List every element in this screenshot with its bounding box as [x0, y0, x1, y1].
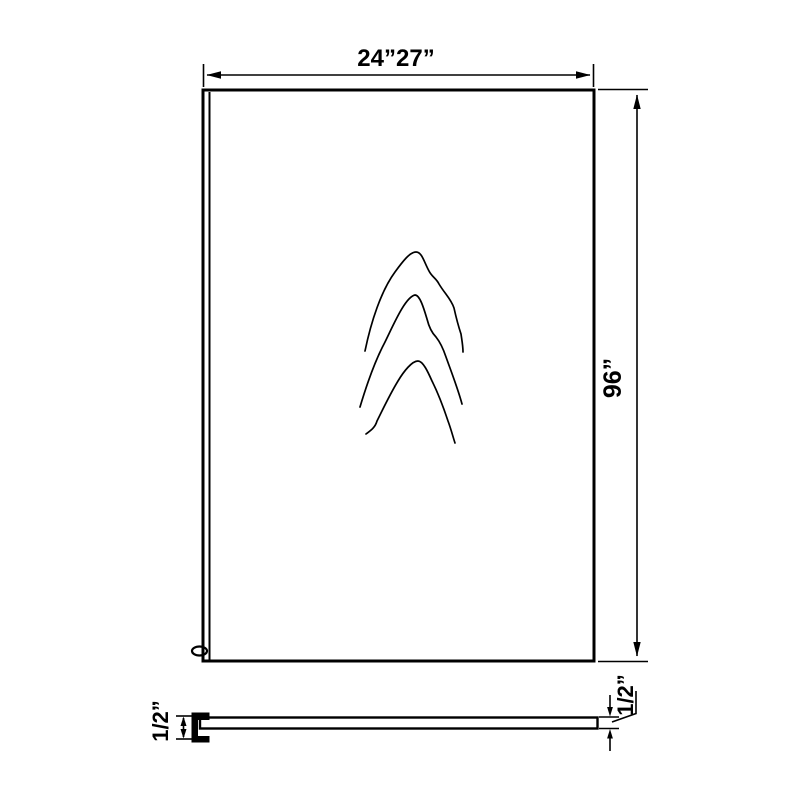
thickness-dimension-left	[176, 716, 192, 739]
panel-drawing: 24”27” 96” 1/2”	[0, 0, 800, 800]
arrow-down-icon	[181, 729, 187, 739]
width-dimension-label: 24”27”	[357, 45, 434, 72]
panel-front-view	[192, 90, 594, 661]
thickness-right-label: 1/2”	[613, 674, 638, 716]
arrow-down-icon	[633, 642, 640, 657]
arrow-up-icon	[633, 95, 640, 110]
edge-section-view	[192, 713, 598, 742]
arrow-up-icon	[181, 717, 187, 727]
thickness-left-label: 1/2”	[148, 700, 173, 742]
height-dimension-label: 96”	[599, 358, 627, 398]
panel-outline	[203, 90, 594, 661]
arrow-up-icon	[607, 729, 613, 739]
arrow-right-icon	[576, 71, 591, 78]
glass-edge-section	[200, 718, 598, 729]
technical-drawing-canvas: 24”27” 96” 1/2”	[0, 0, 800, 800]
arrow-left-icon	[207, 71, 222, 78]
